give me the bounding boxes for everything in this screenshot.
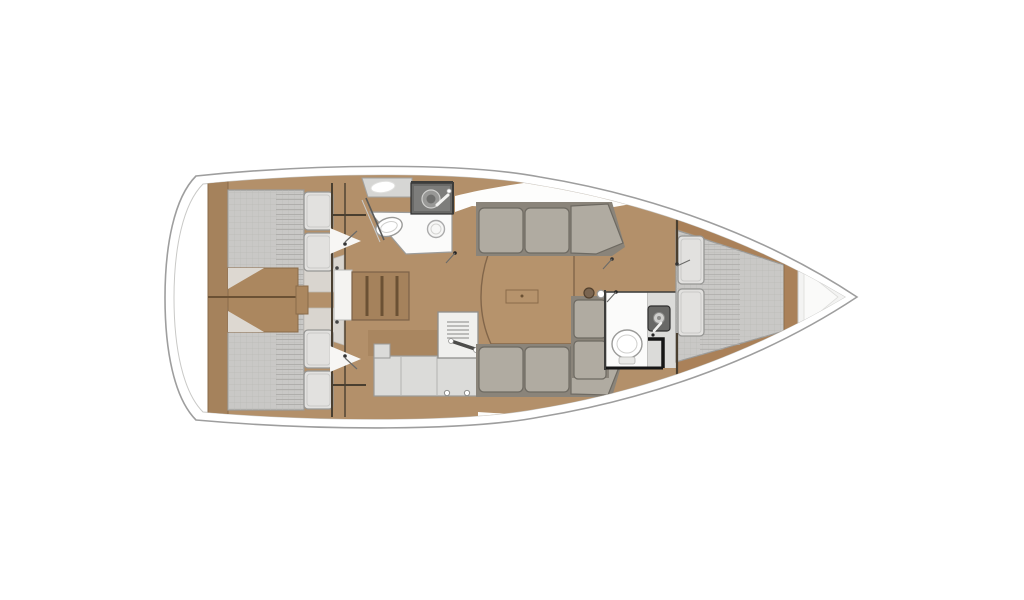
- counter-knob: [464, 390, 469, 395]
- bench-cushion: [574, 300, 606, 338]
- galley-counter: [374, 356, 478, 396]
- faucet-knob: [447, 189, 451, 193]
- washbasin-drain: [657, 316, 661, 320]
- faucet-knob: [651, 333, 654, 336]
- side-bench: [571, 296, 609, 379]
- hardware-dot: [335, 320, 339, 324]
- sofa-cushion: [525, 208, 569, 253]
- mast-post: [584, 288, 594, 298]
- counter-knob: [444, 390, 449, 395]
- vanity-sink-drain: [427, 195, 436, 204]
- bench-cushion: [574, 341, 606, 379]
- stern-bulkhead: [208, 174, 228, 428]
- yacht-floor-plan: [0, 0, 1024, 600]
- sofa-cushion: [479, 347, 523, 392]
- salon: [476, 202, 625, 397]
- table-inlay-dot: [521, 295, 524, 298]
- engine-step: [296, 286, 308, 314]
- pillow: [304, 330, 333, 368]
- pillow: [678, 236, 704, 284]
- pillow: [304, 192, 333, 230]
- sofa-cushion: [525, 347, 569, 392]
- door-hinge: [343, 242, 347, 246]
- vberth-ridge-texture: [700, 238, 740, 355]
- deck-fitting: [597, 290, 605, 298]
- washbasin: [428, 221, 445, 238]
- stove-handle-end: [449, 339, 454, 344]
- sofa-cushion: [479, 208, 523, 253]
- stove: [438, 312, 478, 358]
- port-sofa: [476, 202, 625, 256]
- pillow: [304, 371, 333, 409]
- toilet-tank: [619, 357, 635, 364]
- companionway: [334, 266, 409, 324]
- forward-head: [605, 290, 677, 370]
- hardware-dot: [335, 266, 339, 270]
- pillow: [304, 233, 333, 271]
- door-hinge: [343, 354, 347, 358]
- galley-counter-end: [374, 344, 390, 358]
- yacht-floor-plan-canvas: [0, 0, 1024, 600]
- pillow: [678, 289, 704, 336]
- landing: [334, 270, 352, 320]
- dining-table: [481, 252, 574, 344]
